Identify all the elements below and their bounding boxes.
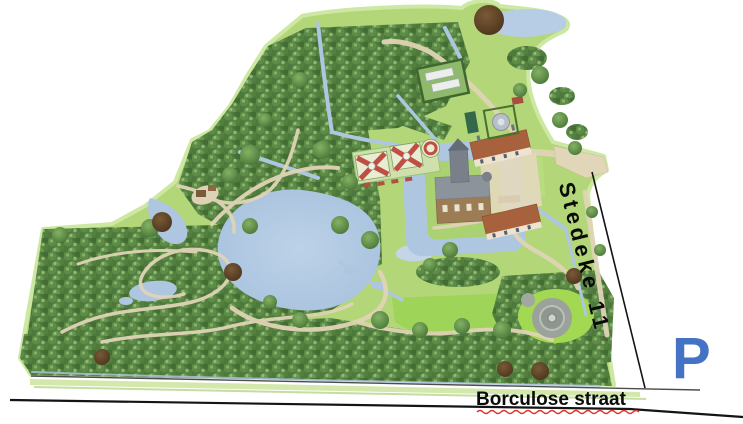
parking-marker: P: [672, 330, 711, 388]
misspelling-underline: [477, 411, 639, 414]
estate-map: Stedeke 11 Borculose straat P: [0, 0, 743, 424]
street-label-borculose: Borculose straat: [476, 390, 626, 409]
map-illustration: [0, 0, 743, 424]
bottom-road-line: [10, 400, 743, 417]
